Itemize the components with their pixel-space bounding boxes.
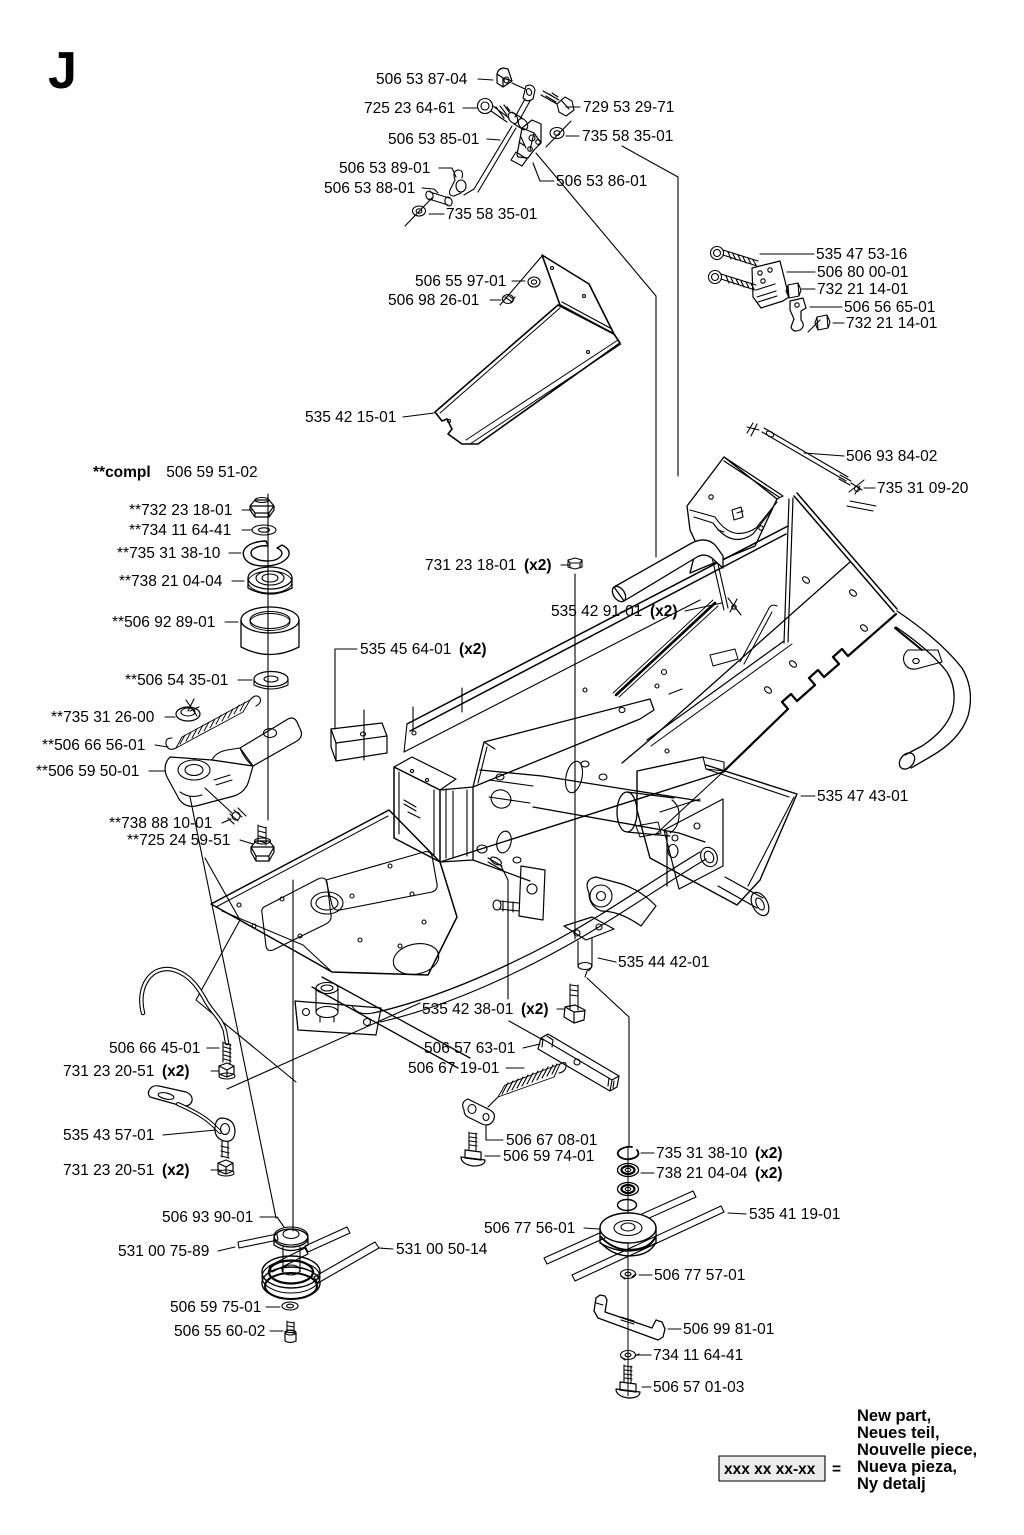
svg-text:**506 59 50-01: **506 59 50-01 [36, 763, 139, 780]
svg-text:Nueva pieza,: Nueva pieza, [857, 1458, 957, 1476]
svg-text:729 53 29-71: 729 53 29-71 [583, 99, 674, 116]
svg-text:735 58 35-01: 735 58 35-01 [446, 206, 537, 223]
svg-text:(x2): (x2) [162, 1063, 190, 1080]
svg-text:506 59 51-02: 506 59 51-02 [162, 464, 258, 481]
svg-text:535 44 42-01: 535 44 42-01 [618, 954, 709, 971]
svg-text:731 23 18-01: 731 23 18-01 [425, 557, 521, 574]
svg-text:(x2): (x2) [524, 557, 552, 574]
svg-text:506 53 89-01: 506 53 89-01 [339, 160, 430, 177]
svg-text:**735 31 26-00: **735 31 26-00 [51, 709, 155, 726]
svg-text:Neues teil,: Neues teil, [857, 1424, 940, 1442]
svg-text:535 45 64-01: 535 45 64-01 [360, 641, 456, 658]
svg-text:(x2): (x2) [521, 1001, 549, 1018]
svg-text:531 00 75-89: 531 00 75-89 [118, 1243, 209, 1260]
svg-text:535 42 38-01: 535 42 38-01 [422, 1001, 518, 1018]
svg-text:(x2): (x2) [162, 1162, 190, 1179]
svg-text:535 41 19-01: 535 41 19-01 [749, 1206, 840, 1223]
svg-text:734 11 64-41: 734 11 64-41 [653, 1347, 743, 1364]
svg-text:=: = [832, 1461, 841, 1478]
svg-text:Ny detalj: Ny detalj [857, 1475, 926, 1493]
svg-text:506 59 75-01: 506 59 75-01 [170, 1299, 261, 1316]
svg-text:J: J [48, 42, 77, 100]
svg-text:732 21 14-01: 732 21 14-01 [817, 281, 908, 298]
svg-text:(x2): (x2) [650, 603, 678, 620]
svg-text:506 53 87-04: 506 53 87-04 [376, 71, 468, 88]
svg-text:506 66 45-01: 506 66 45-01 [109, 1040, 200, 1057]
svg-text:(x2): (x2) [755, 1165, 783, 1182]
svg-text:735 31 09-20: 735 31 09-20 [877, 480, 969, 497]
svg-text:506 93 84-02: 506 93 84-02 [846, 448, 937, 465]
svg-text:735 31 38-10: 735 31 38-10 [656, 1145, 752, 1162]
svg-text:506 67 08-01: 506 67 08-01 [506, 1132, 597, 1149]
svg-text:506 67 19-01: 506 67 19-01 [408, 1060, 499, 1077]
svg-text:New part,: New part, [857, 1407, 931, 1425]
svg-text:(x2): (x2) [459, 641, 487, 658]
svg-text:(x2): (x2) [755, 1145, 783, 1162]
svg-text:506 55 60-02: 506 55 60-02 [174, 1323, 265, 1340]
svg-text:506 56 65-01: 506 56 65-01 [844, 299, 935, 316]
svg-text:535 43 57-01: 535 43 57-01 [63, 1127, 154, 1144]
svg-text:506 77 56-01: 506 77 56-01 [484, 1220, 575, 1237]
svg-text:506 59 74-01: 506 59 74-01 [503, 1148, 594, 1165]
svg-text:506 99 81-01: 506 99 81-01 [683, 1321, 774, 1338]
svg-text:506 53 86-01: 506 53 86-01 [556, 173, 647, 190]
svg-text:**734 11 64-41: **734 11 64-41 [129, 522, 231, 539]
svg-text:**506 66 56-01: **506 66 56-01 [42, 737, 145, 754]
svg-text:**725 24 59-51: **725 24 59-51 [127, 832, 230, 849]
svg-text:732 21 14-01: 732 21 14-01 [846, 315, 937, 332]
svg-text:xxx xx xx-xx: xxx xx xx-xx [724, 1461, 816, 1478]
svg-text:506 53 88-01: 506 53 88-01 [324, 180, 415, 197]
svg-text:535 42 15-01: 535 42 15-01 [305, 409, 396, 426]
svg-text:506 80 00-01: 506 80 00-01 [817, 264, 908, 281]
svg-text:506 57 63-01: 506 57 63-01 [424, 1040, 515, 1057]
svg-text:506 57 01-03: 506 57 01-03 [653, 1379, 744, 1396]
svg-text:**506 92 89-01: **506 92 89-01 [112, 614, 215, 631]
svg-text:738 21 04-04: 738 21 04-04 [656, 1165, 752, 1182]
svg-text:535 47 43-01: 535 47 43-01 [817, 788, 908, 805]
svg-text:725 23 64-61: 725 23 64-61 [364, 100, 455, 117]
svg-text:**506 54 35-01: **506 54 35-01 [125, 672, 228, 689]
svg-text:535 42 91-01: 535 42 91-01 [551, 603, 647, 620]
svg-text:506 77 57-01: 506 77 57-01 [654, 1267, 745, 1284]
svg-text:735 58 35-01: 735 58 35-01 [582, 128, 673, 145]
svg-text:**compl: **compl [93, 464, 151, 481]
svg-text:**738 21 04-04: **738 21 04-04 [119, 573, 223, 590]
svg-text:506 53 85-01: 506 53 85-01 [388, 131, 479, 148]
svg-text:506 55 97-01: 506 55 97-01 [415, 273, 506, 290]
svg-text:Nouvelle piece,: Nouvelle piece, [857, 1441, 977, 1459]
svg-text:506 93 90-01: 506 93 90-01 [162, 1209, 253, 1226]
svg-text:531 00 50-14: 531 00 50-14 [396, 1241, 488, 1258]
svg-text:**732 23 18-01: **732 23 18-01 [129, 502, 232, 519]
svg-text:535 47 53-16: 535 47 53-16 [816, 246, 907, 263]
svg-text:731 23 20-51: 731 23 20-51 [63, 1063, 159, 1080]
svg-text:**735 31 38-10: **735 31 38-10 [117, 545, 221, 562]
svg-text:731 23 20-51: 731 23 20-51 [63, 1162, 159, 1179]
svg-text:506 98 26-01: 506 98 26-01 [388, 292, 479, 309]
